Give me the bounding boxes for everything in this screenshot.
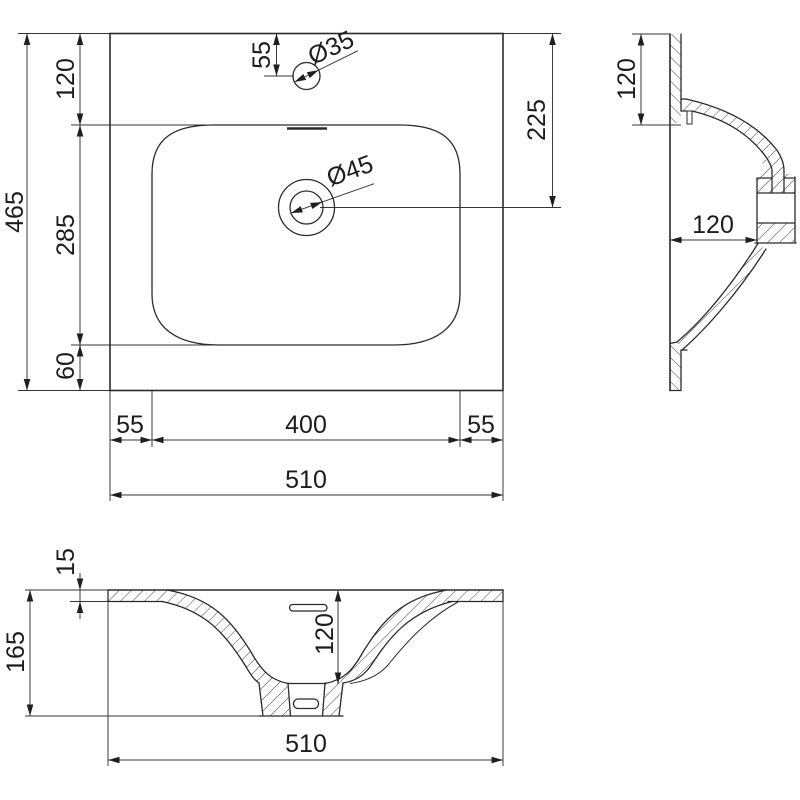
side-dimension-lines	[632, 34, 757, 240]
dim-back-ledge: 120	[613, 58, 641, 100]
side-back-flange-hatch-top	[670, 34, 681, 123]
dim-overall-width-front: 510	[285, 730, 327, 758]
dim-bowl-depth: 120	[311, 613, 339, 655]
dim-drain-offset: 225	[523, 99, 551, 141]
dim-overall-depth: 465	[1, 191, 29, 233]
dim-faucet-offset: 55	[248, 41, 276, 69]
washbasin-technical-drawing: 465 120 285 60 55 Ø35 Ø45 225 55 400 55 …	[0, 0, 800, 800]
side-back-flange-hatch-bottom	[670, 344, 681, 390]
front-boss-hatch-left	[259, 683, 291, 716]
front-section-view: 15 165 120 510	[2, 548, 503, 766]
dim-overall-height: 165	[2, 631, 30, 673]
dim-back-strip: 120	[52, 58, 80, 100]
countertop-outline	[110, 34, 503, 391]
side-under-shell-hatch	[677, 244, 766, 350]
dim-bowl-width: 400	[285, 411, 327, 439]
front-shell-hatch-left	[108, 590, 288, 684]
overflow-slot-front	[290, 605, 328, 612]
dim-bowl-right-margin: 55	[467, 411, 495, 439]
dim-bowl-length: 285	[52, 214, 80, 256]
dim-overall-width-plan: 510	[285, 466, 327, 494]
side-boss-hatch-right	[784, 172, 795, 193]
dim-outlet-offset: 120	[692, 211, 734, 239]
side-boss-hatch-bottom	[757, 223, 795, 243]
dim-rim-thickness: 15	[52, 548, 80, 576]
side-section-view: 120 120	[613, 34, 796, 391]
drawing-page: 465 120 285 60 55 Ø35 Ø45 225 55 400 55 …	[0, 0, 800, 800]
plan-view: 465 120 285 60 55 Ø35 Ø45 225 55 400 55 …	[1, 25, 561, 501]
dim-front-strip: 60	[52, 352, 80, 380]
dim-bowl-left-margin: 55	[116, 411, 144, 439]
front-profile-outline	[108, 590, 503, 716]
